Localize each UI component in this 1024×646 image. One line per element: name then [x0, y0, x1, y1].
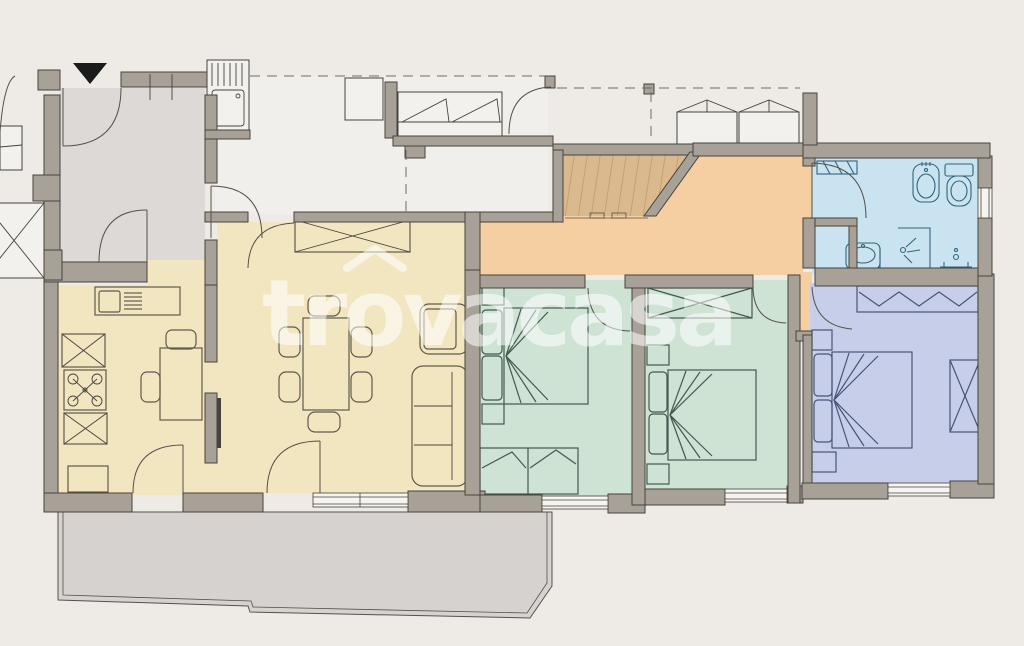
sliding-door-leaf	[217, 398, 221, 448]
bedroom1-window	[542, 496, 608, 509]
living-window	[313, 493, 408, 507]
planter-bench	[345, 78, 383, 120]
elevator-shaft	[0, 203, 44, 278]
terrace	[58, 512, 552, 618]
outdoor-sofa	[398, 92, 502, 138]
floor-plan-drawing	[0, 0, 1024, 646]
stair-landing	[0, 126, 22, 170]
loggia-ledge	[205, 130, 250, 139]
floor-plan-page: trovacasa	[0, 0, 1024, 646]
bedroom2-window	[725, 489, 787, 502]
bathroom-floor	[812, 155, 982, 275]
bathroom-window	[978, 188, 992, 218]
master-window	[888, 483, 950, 496]
entry-hall-floor	[60, 88, 205, 262]
